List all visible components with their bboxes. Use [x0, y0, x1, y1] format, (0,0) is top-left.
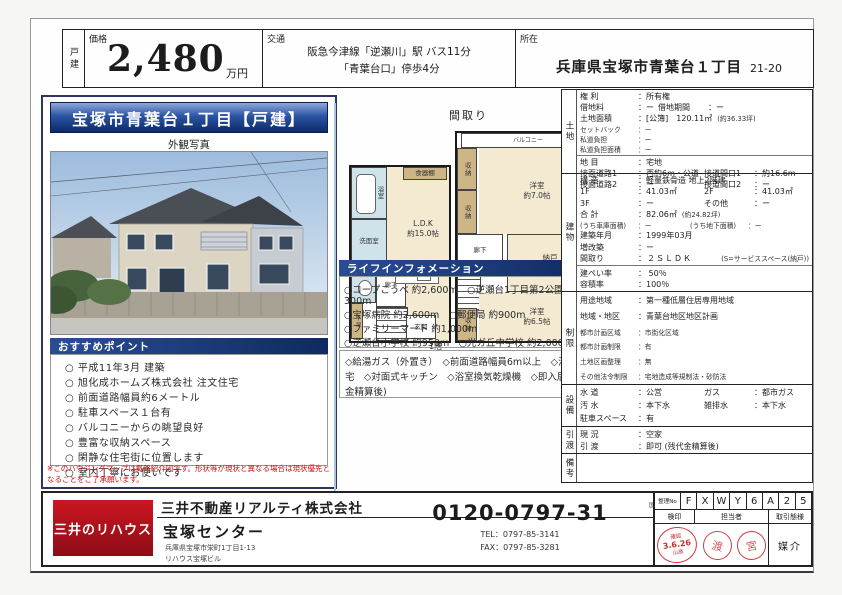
serial-label: 整理No: [655, 493, 681, 509]
closet-2f-a: 収納: [457, 148, 477, 190]
recommend-list: ○ 平成11年3月 建築○ 旭化成ホームズ株式会社 注文住宅○ 前面道路幅員約6…: [50, 354, 328, 466]
flyer-sheet: 戸建 価格 2,480 万円 交通 阪急今津線「逆瀬川」駅 バス11分 「青葉台…: [30, 18, 814, 573]
bathtub-icon: [356, 174, 376, 214]
serial-char-cell: 2: [779, 493, 795, 509]
office-address-line1: 兵庫県宝塚市栄町1丁目1-13: [165, 543, 255, 554]
feature-tags: ◇給湯ガス（外置き） ◇前面道路幅員6m以上 ◇注文住宅 ◇対面式キッチン ◇浴…: [339, 350, 599, 398]
photo-caption: 外観写真: [43, 137, 335, 152]
life-info-header: ライフインフォメーション: [339, 260, 599, 276]
price-unit: 万円: [226, 65, 248, 81]
life-info-line: ○逆瀬台小学校 約950m ○光ガ丘中学校 約2,000m: [344, 335, 594, 349]
recommend-header: おすすめポイント: [50, 338, 328, 354]
location-cell: 所在 兵庫県宝塚市青葉台１丁目21-20: [516, 30, 813, 87]
closet-2f-b: 収納: [457, 190, 477, 234]
section-restrictions-label: 制限: [562, 292, 577, 384]
office-name: 宝塚センター: [163, 521, 265, 542]
section-building-label: 建物: [562, 174, 577, 291]
serial-table: 整理No FXWY6A25 検印 担当者 取引態様 確認 3.6.26 山高 渡…: [653, 491, 813, 567]
confirmation-stamp: 確認 3.6.26 山高: [655, 524, 700, 565]
tel-number: TEL：0797-85-3141: [395, 529, 645, 542]
section-notes-label: 備考: [562, 454, 577, 482]
access-text: 阪急今津線「逆瀬川」駅 バス11分 「青葉台口」停歩4分: [263, 44, 515, 79]
section-facilities-label: 設備: [562, 385, 577, 426]
serial-cells: FXWY6A25: [681, 493, 811, 509]
life-info-line: ○ファミリーマート 約1,000m: [344, 321, 594, 335]
serial-char-cell: W: [714, 493, 730, 509]
recommend-item: ○ バルコニーからの眺望良好: [65, 419, 325, 434]
ldk-label: L.D.K約15.0帖: [399, 215, 447, 243]
section-notes: 備考: [562, 454, 812, 482]
agent-seal-1: 渡: [700, 528, 734, 562]
phone-block: 0120-0797-31 TEL：0797-85-3141 FAX：0797-8…: [395, 501, 645, 555]
freedial-number: 0120-0797-31: [395, 501, 645, 525]
recommend-item: ○ 旭化成ホームズ株式会社 注文住宅: [65, 374, 325, 389]
stamp-header-row: 検印 担当者 取引態様: [655, 510, 811, 524]
recommend-item: ○ 前面道路幅員約6メートル: [65, 389, 325, 404]
location-value: 兵庫県宝塚市青葉台１丁目21-20: [556, 56, 782, 77]
location-label: 所在: [520, 32, 538, 45]
section-delivery-label: 引渡: [562, 427, 577, 453]
section-land: 土地 権 利：所有権 借地料：ー借地期間：ー 土地面積：[公簿] 120.11㎡…: [562, 90, 812, 174]
serial-char-cell: F: [681, 493, 697, 509]
price-value: 2,480: [107, 38, 225, 80]
stamp-row: 確認 3.6.26 山高 渡 宮 媒介: [655, 524, 811, 567]
transaction-type-value: 媒介: [768, 524, 811, 567]
price-cell: 価格 2,480 万円: [85, 30, 263, 87]
property-category: 戸建: [63, 30, 85, 87]
serial-row: 整理No FXWY6A25: [655, 493, 811, 510]
detail-table: 土地 権 利：所有権 借地料：ー借地期間：ー 土地面積：[公簿] 120.11㎡…: [561, 89, 813, 483]
section-delivery: 引渡 現 況：空家 引 渡：即可 (残代金精算後): [562, 427, 812, 454]
fax-number: FAX：0797-85-3281: [395, 542, 645, 555]
column-divider: [334, 103, 336, 499]
access-line1: 阪急今津線「逆瀬川」駅 バス11分: [263, 44, 515, 61]
office-address: 兵庫県宝塚市栄町1丁目1-13 リハウス宝塚ビル: [165, 543, 255, 564]
left-panel: 宝塚市青葉台１丁目【戸建】 外観写真: [41, 95, 337, 489]
transaction-type-header: 取引態様: [769, 510, 811, 523]
map-disclaimer-note: ※このハウジングマップは概略紹介図です。形状等が現状と異なる場合は現状優先となる…: [47, 463, 333, 485]
mitsui-rehouse-logo: 三井のリハウス: [53, 500, 153, 556]
section-building: 建物 構 造：軽量鉄骨造 地上2階建 1F：41.03㎡2F：41.03㎡ 3F…: [562, 174, 812, 292]
serial-char-cell: X: [697, 493, 713, 509]
tel-fax: TEL：0797-85-3141 FAX：0797-85-3281: [395, 529, 645, 555]
property-title-banner: 宝塚市青葉台１丁目【戸建】: [50, 102, 328, 133]
price-label: 価格: [89, 32, 107, 45]
agent-header: 担当者: [695, 510, 769, 523]
serial-char-cell: A: [763, 493, 779, 509]
check-seal-header: 検印: [655, 510, 695, 523]
section-facilities: 設備 水 道：公営ガス：都市ガス 汚 水：本下水雑排水：本下水 駐車スペース：有: [562, 385, 812, 427]
life-info-list: ○コープこうべ 約2,600m ○逆瀬台1丁目第2公園 約300m○宝塚病院 約…: [339, 276, 599, 348]
exterior-photo: [50, 151, 328, 335]
recommend-item: ○ 平成11年3月 建築: [65, 359, 325, 374]
section-restrictions: 制限 用途地域：第一種低層住居専用地域 地域・地区：青葉台地区地区計画 都市計画…: [562, 292, 812, 385]
location-number: 21-20: [750, 62, 782, 75]
recommend-item: ○ 豊富な収納スペース: [65, 434, 325, 449]
life-info-line: ○宝塚病院 約2,600m ○郵便局 約900m: [344, 307, 594, 321]
access-line2: 「青葉台口」停歩4分: [263, 61, 515, 78]
serial-char-cell: Y: [730, 493, 746, 509]
section-land-label: 土地: [562, 90, 577, 173]
cupboard: 食器棚: [403, 167, 447, 180]
floorplan-title: 間取り: [449, 107, 488, 123]
serial-char-cell: 5: [796, 493, 811, 509]
agent-seal-2: 宮: [735, 529, 769, 563]
office-address-line2: リハウス宝塚ビル: [165, 554, 255, 565]
header-strip: 戸建 価格 2,480 万円 交通 阪急今津線「逆瀬川」駅 バス11分 「青葉台…: [62, 29, 814, 88]
house-photo-illustration: [51, 152, 327, 334]
recommend-item: ○ 閑静な住宅街に位置します: [65, 449, 325, 464]
room-washroom: 洗面室: [351, 219, 387, 263]
footer: 三井のリハウス 三井不動産リアルティ株式会社 宝塚センター 兵庫県宝塚市栄町1丁…: [41, 491, 813, 567]
access-cell: 交通 阪急今津線「逆瀬川」駅 バス11分 「青葉台口」停歩4分: [263, 30, 516, 87]
company-name: 三井不動産リアルティ株式会社: [161, 497, 363, 517]
serial-char-cell: 6: [747, 493, 763, 509]
room-bath: 浴室: [351, 167, 387, 219]
recommend-item: ○ 駐車スペース１台有: [65, 404, 325, 419]
life-info-line: ○コープこうべ 約2,600m ○逆瀬台1丁目第2公園 約300m: [344, 282, 594, 307]
